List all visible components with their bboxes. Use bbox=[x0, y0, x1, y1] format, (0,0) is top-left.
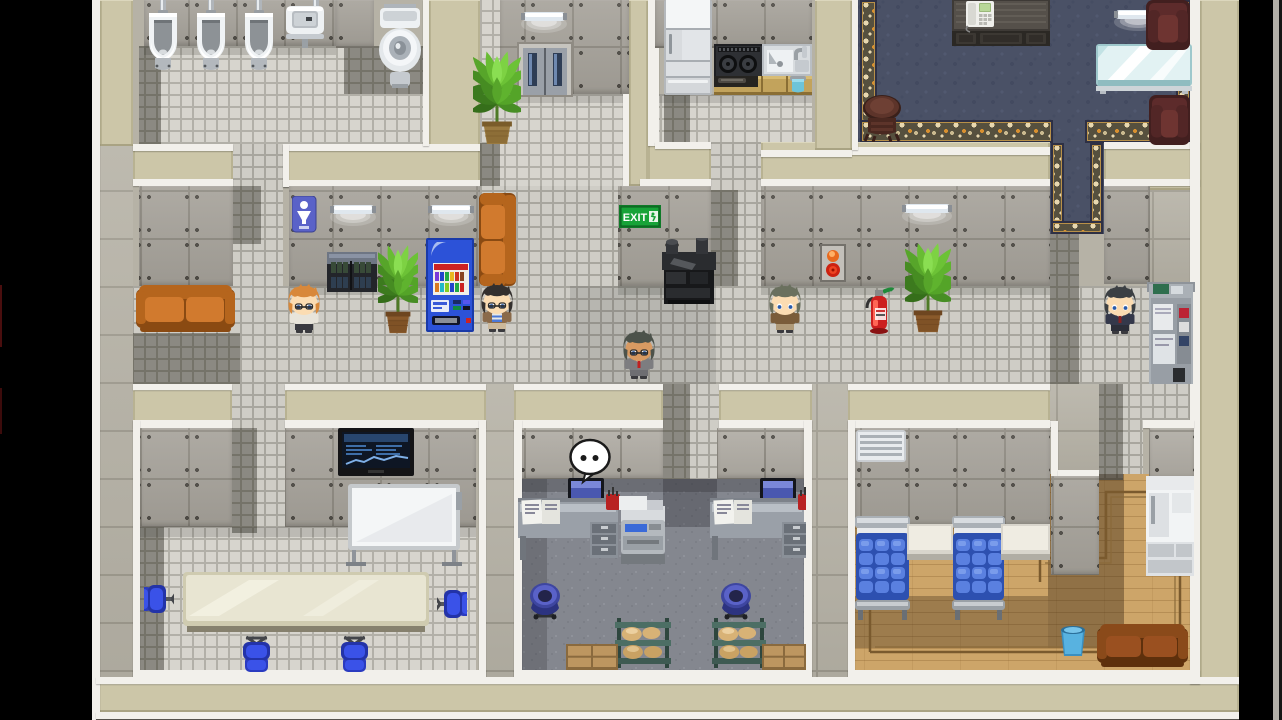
svg-text:EXIT: EXIT bbox=[623, 212, 648, 224]
